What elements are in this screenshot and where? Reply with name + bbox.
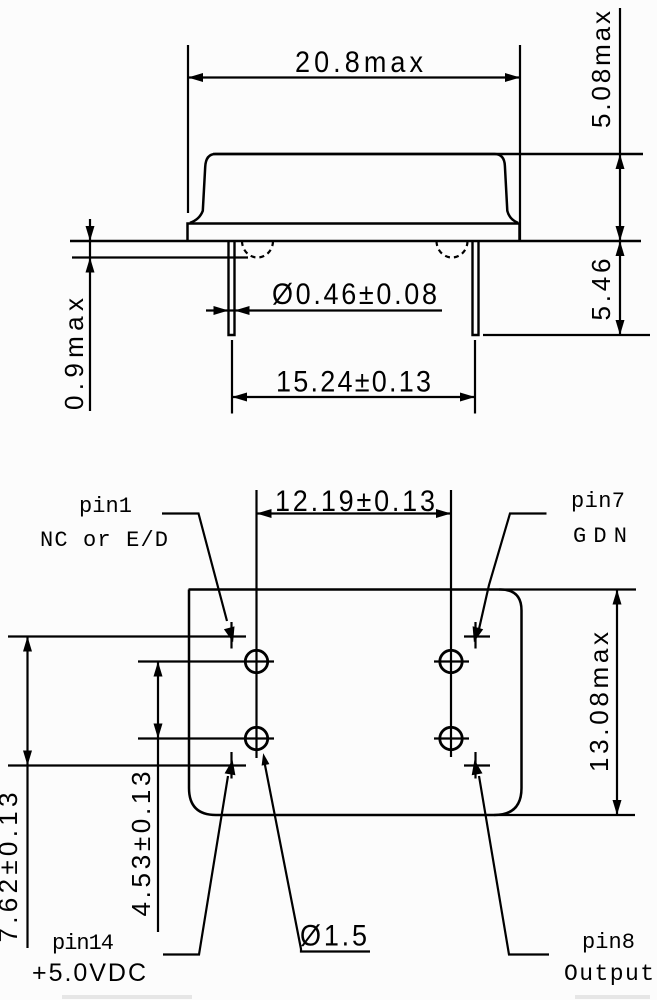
svg-text:pin14: pin14 <box>52 931 114 956</box>
svg-text:5.08max: 5.08max <box>586 11 616 128</box>
svg-text:20.8max: 20.8max <box>295 46 423 79</box>
svg-text:GDN: GDN <box>573 524 627 549</box>
svg-text:7.62±0.13: 7.62±0.13 <box>0 793 23 943</box>
svg-text:pin8: pin8 <box>582 930 635 955</box>
svg-text:13.08max: 13.08max <box>584 632 614 772</box>
svg-text:+5.0VDC: +5.0VDC <box>32 959 146 987</box>
svg-text:NC or E/D: NC or E/D <box>40 528 168 553</box>
svg-text:5.46: 5.46 <box>586 259 616 321</box>
svg-text:pin7: pin7 <box>571 489 625 514</box>
svg-text:pin1: pin1 <box>79 494 132 519</box>
svg-text:Ø0.46±0.08: Ø0.46±0.08 <box>272 278 437 311</box>
svg-text:Ø1.5: Ø1.5 <box>300 919 367 952</box>
svg-text:4.53±0.13: 4.53±0.13 <box>126 772 156 917</box>
svg-text:Output: Output <box>564 961 654 987</box>
